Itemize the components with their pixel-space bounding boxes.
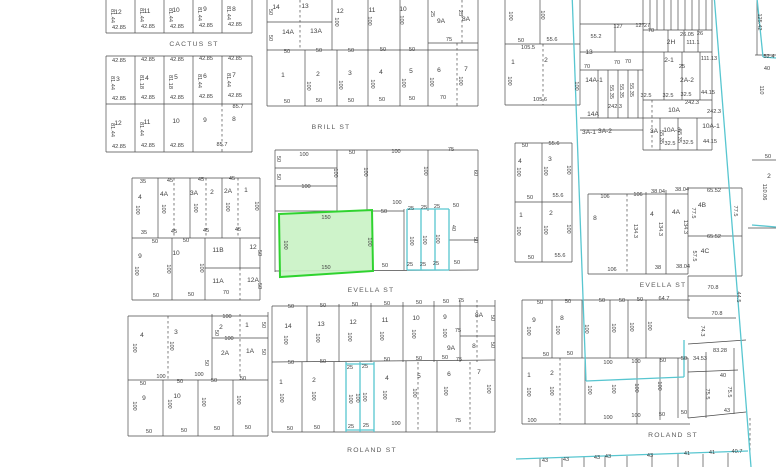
dimension-label: 100 [457,76,463,85]
lot-number-label: 3A [650,128,659,135]
dimension-label: 50 [454,260,460,266]
dimension-label: 81.18 [138,75,144,89]
lot-number-label: 8 [560,315,564,322]
dimension-label: 100 [554,325,560,334]
dimension-label: 32.5 [683,140,694,146]
dimension-label: 50 [245,425,251,431]
dimension-label: 100 [525,387,531,396]
dimension-label: 42.85 [199,23,213,29]
dimension-label: 25 [408,206,414,212]
dimension-label: 38.04 [675,187,689,193]
dimension-label: 42.85 [141,143,155,149]
lot-number-label: 6 [203,73,207,80]
dimension-label: 32.5 [665,141,676,147]
dimension-label: 40 [764,66,770,72]
lot-number-label: 9A [447,345,456,352]
dimension-label: 44.15 [703,139,717,145]
dimension-label: 50 [489,342,495,348]
dimension-label: 43 [563,457,569,463]
lot-number-label: 11 [144,119,151,126]
dimension-label: 100 [548,386,554,395]
dimension-label: 70 [440,95,446,101]
dimension-label: 55.2 [591,34,602,40]
dimension-label: 45 [167,178,173,184]
lot-number-label: 4C [701,248,710,255]
dimension-label: 40 [450,225,456,231]
dimension-label: 50 [183,238,189,244]
dimension-label: 75 [458,298,464,304]
dimension-label: 106 [607,267,616,273]
lot-number-label: 1 [527,372,531,379]
dimension-label: 100 [222,314,231,320]
dimension-label: 50 [409,96,415,102]
dimension-label: 100 [485,384,491,393]
dimension-label: 50 [565,299,571,305]
lot-number-label: 12 [114,120,122,127]
dimension-label: 100 [515,167,521,176]
dimension-label: 55.6 [547,37,558,43]
dimension-label: 100 [628,322,634,331]
dimension-label: 100 [631,359,640,365]
dimension-label: 45 [171,229,177,235]
lot-number-label: 6 [447,371,451,378]
dimension-label: 100 [305,81,311,90]
street-label: EVELLA ST [348,287,395,294]
dimension-label: 100 [542,225,548,234]
dimension-label: 42.85 [228,93,242,99]
dimension-label: 77.5 [732,206,738,217]
dimension-label: 26.05 [680,32,694,38]
dimension-label: 81.44 [225,73,231,87]
dimension-label: 41 [709,450,715,456]
dimension-label: 42.85 [112,96,126,102]
dimension-label: 100 [398,15,404,24]
dimension-label: 75 [446,37,452,43]
dimension-label: 50 [765,154,771,160]
dimension-label: 42.85 [141,24,155,30]
dimension-label: 50 [188,292,194,298]
lot-number-label: 8A [462,16,471,23]
dimension-label: 55.35 [618,84,624,98]
dimension-label: 50 [527,195,533,201]
lot-number-label: 2A [221,350,230,357]
dimension-label: 110.06 [761,184,767,201]
dimension-label: 100 [610,323,616,332]
lot-number-label: 2 [219,324,223,331]
dimension-label: 42.85 [112,58,126,64]
dimension-label: 45 [203,228,209,234]
dimension-label: 50 [416,300,422,306]
lot-number-label: 8 [593,215,597,222]
dimension-label: 100 [200,397,206,406]
dimension-label: 65.52 [707,234,721,240]
dimension-label: 25 [421,205,427,211]
dimension-label: 42.85 [199,56,213,62]
dimension-label: 44.15 [701,90,715,96]
dimension-label: 111.1 [686,40,699,46]
lot-number-label: 2 [210,189,214,196]
lot-number-label: 2 [316,71,320,78]
lot-number-label: 4B [698,202,707,209]
dimension-label: 50 [382,263,388,269]
lot-number-label: 12 [249,244,257,251]
lot-number-label: 10 [412,315,420,322]
lot-number-label: 11B [212,247,224,254]
dimension-label: 100 [224,336,233,342]
lot-number-label: 7 [232,72,236,79]
dimension-label: 100 [133,266,139,275]
dimension-label: 25 [679,64,685,70]
dimension-label: 50 [472,237,478,243]
dimension-label: 100 [192,203,198,212]
dimension-label: 60 [472,170,478,176]
dimension-label: 100 [160,204,166,213]
lot-number-label: 7 [464,66,468,73]
lot-number-label: 4A [160,191,169,198]
dimension-label: 100 [441,328,447,337]
dimension-label: 100 [168,341,174,350]
lot-number-label: 3 [116,76,120,83]
lot-number-label: 14 [284,323,292,330]
street-label: EVELLA ST [640,282,687,289]
dimension-label: 100 [408,236,414,245]
dimension-label: 100 [391,149,400,155]
parcel-map: 15015010010081.4481.4481.4481.4481.4442.… [0,0,776,467]
dimension-label: 50 [381,209,387,215]
lot-number-label: 3A [190,190,199,197]
lot-number-label: 4 [379,69,383,76]
dimension-label: 50 [275,174,281,180]
dimension-label: 100 [198,263,204,272]
dimension-label: 134.3 [657,222,663,236]
lot-number-label: 10 [172,7,180,14]
dimension-label: 100 [333,17,339,26]
dimension-label: 55.6 [555,253,566,259]
dimension-label: 100 [282,335,288,344]
lot-number-label: 14A [587,111,599,118]
dimension-label: 100 [391,421,400,427]
dimension-label: 50 [384,357,390,363]
dimension-label: 100 [347,394,353,403]
dimension-label: 45 [198,177,204,183]
dimension-label: 50 [380,47,386,53]
dimension-label: 100 [656,381,662,390]
dimension-label: 100 [131,343,137,352]
dimension-label: 50 [416,356,422,362]
lot-number-label: 1 [244,187,248,194]
lot-number-label: 2 [549,210,553,217]
lot-number-label: 1 [519,212,523,219]
dimension-label: 25 [347,365,353,371]
dimension-label: 100 [434,234,440,243]
lot-number-label: 13 [317,321,325,328]
lot-number-label: 9 [203,117,207,124]
dimension-label: 100 [515,226,521,235]
dimension-label: 25 [434,204,440,210]
dimension-label: 35 [141,230,147,236]
lot-number-label: 9 [443,314,447,321]
lot-number-label: 2A-2 [680,77,694,84]
dimension-label: 100 [301,184,310,190]
street-label: ROLAND ST [347,447,397,454]
highlighted-parcel-dimension: 150 [321,215,330,221]
dimension-label: 127 [613,24,622,30]
lot-number-label: 3A-2 [598,128,612,135]
dimension-label: 70.8 [712,311,723,317]
dimension-label: 100 [369,79,375,88]
dimension-label: 45 [229,176,235,182]
dimension-label: 70 [648,28,654,34]
dimension-label: 25 [420,262,426,268]
dimension-label: 50 [348,98,354,104]
dimension-label: 75 [456,357,462,363]
dimension-label: 100 [527,418,536,424]
dimension-label: 25 [363,423,369,429]
dimension-label: 50 [349,150,355,156]
dimension-label: 43 [724,408,730,414]
dimension-label: 70 [584,64,590,70]
lot-number-label: 12 [349,319,357,326]
dimension-label: 125.42 [756,13,762,30]
dimension-label: 106 [600,194,609,200]
dimension-label: 50 [288,304,294,310]
dimension-label: 100 [165,264,171,273]
dimension-label: 81.18 [167,75,173,89]
dimension-label: 50 [181,428,187,434]
lot-number-label: 1A [246,348,255,355]
dimension-label: 75 [455,418,461,424]
dimension-label: 50 [518,38,524,44]
dimension-label: 42.85 [170,143,184,149]
dimension-label: 100 [310,391,316,400]
dimension-label: 100 [366,16,372,25]
dimension-label: 50 [316,48,322,54]
dimension-label: 100 [378,331,384,340]
dimension-label: 50 [177,379,183,385]
dimension-label: 50 [153,293,159,299]
dimension-label: 100 [346,332,352,341]
lot-number-label: 11 [382,317,389,324]
dimension-label: 43 [647,453,653,459]
dimension-label: 40 [720,373,726,379]
dimension-label: 81.44 [196,74,202,88]
dimension-label: 57.5 [691,251,697,262]
dimension-label: 85.7 [233,104,244,110]
dimension-label: 134.3 [682,220,688,234]
lot-number-label: 13 [585,49,593,56]
dimension-label: 100 [278,393,284,402]
lot-number-label: 12 [114,9,122,16]
dimension-label: 100 [134,205,140,214]
dimension-label: 100 [507,11,513,20]
dimension-label: 50 [409,47,415,53]
dimension-label: 38 [655,265,661,271]
dimension-label: 100 [410,329,416,338]
dimension-label: 100 [565,224,571,233]
dimension-label: 100 [235,395,241,404]
dimension-label: 70 [625,59,631,65]
lot-number-label: 4 [145,75,149,82]
dimension-label: 43 [605,454,611,460]
lot-number-label: 2A [224,188,233,195]
lot-number-label: 9 [138,253,142,260]
dimension-label: 42.85 [228,22,242,28]
lot-number-label: 5 [409,68,413,75]
dimension-label: 25 [362,364,368,370]
dimension-label: 85.7 [217,142,228,148]
highlighted-parcel-dimension: 100 [366,237,372,246]
dimension-label: 50 [442,355,448,361]
dimension-label: 38.04 [676,264,690,270]
dimension-label: 74.3 [699,326,705,337]
dimension-label: 100 [421,235,427,244]
dimension-label: 100 [542,166,548,175]
dimension-label: 100 [428,77,434,86]
dimension-label: 42.85 [199,94,213,100]
dimension-label: 100 [539,10,545,19]
dimension-label: 50 [284,99,290,105]
dimension-label: 50 [275,156,281,162]
dimension-label: 50 [443,299,449,305]
lot-number-label: 2 [767,173,771,180]
dimension-label: 100 [631,413,640,419]
dimension-label: 100 [253,201,259,210]
lot-number-label: 1 [511,59,515,66]
dimension-label: 42.85 [170,57,184,63]
dimension-label: 81.44 [196,7,202,21]
dimension-label: 55.35 [628,83,634,97]
lot-number-label: 4 [138,194,142,201]
dimension-label: 100 [337,80,343,89]
dimension-label: 75 [455,328,461,334]
lot-number-label: 4 [385,375,389,382]
dimension-label: 50 [659,412,665,418]
dimension-label: 50 [287,426,293,432]
lot-number-label: 10A-3 [663,127,681,134]
dimension-label: 44.5 [735,292,741,303]
dimension-label: 50 [140,381,146,387]
dimension-label: 100 [565,165,571,174]
lot-number-label: 1 [281,72,285,79]
dimension-label: 32.5 [681,92,692,98]
dimension-label: 111.13 [701,56,717,62]
dimension-label: 70 [614,60,620,66]
lot-number-label: 2 [550,370,554,377]
dimension-label: 42.85 [112,144,126,150]
lot-number-label: 8 [472,343,476,350]
dimension-label: 83.28 [713,348,727,354]
dimension-label: 242.3 [685,100,699,106]
dimension-label: 50 [203,360,209,366]
lot-number-label: 10 [172,250,180,257]
lot-number-label: 8 [232,6,236,13]
lot-number-label: 10 [172,118,180,125]
dimension-label: 50 [260,349,266,355]
dimension-label: 50 [214,426,220,432]
street-label: BRILL ST [312,124,351,131]
dimension-label: 100 [361,392,367,401]
dimension-label: 50 [240,376,246,382]
dimension-label: 50 [260,322,266,328]
lot-number-label: 8A [475,312,484,319]
lot-number-label: 14A-1 [585,77,603,84]
dimension-label: 50 [543,352,549,358]
dimension-label: 100 [573,81,579,90]
dimension-label: 70 [223,290,229,296]
lot-number-label: 13 [301,3,309,10]
dimension-label: 43 [594,455,600,461]
lot-number-label: 9 [532,317,536,324]
dimension-label: 50 [619,298,625,304]
lot-number-label: 9A [437,18,446,25]
dimension-label: 100 [299,152,308,158]
lot-number-label: 11A [212,278,224,285]
dimension-label: 81.44 [109,76,115,90]
dimension-label: 50 [314,425,320,431]
dimension-label: 25 [429,11,435,17]
dimension-label: 50 [320,359,326,365]
dimension-label: 100 [362,167,368,176]
dimension-label: 50 [267,35,273,41]
lot-number-label: 3A-1 [582,129,596,136]
lot-number-label: 1 [245,322,249,329]
dimension-label: 50 [537,300,543,306]
dimension-label: 242.3 [707,109,721,115]
dimension-label: 42.85 [112,25,126,31]
dimension-label: 32.5 [663,93,674,99]
dimension-label: 25 [348,424,354,430]
dimension-label: 75.5 [726,387,732,398]
dimension-label: 105.5 [521,45,535,51]
dimension-label: 50 [453,203,459,209]
dimension-label: 100 [506,76,512,85]
lot-number-label: 12A [247,277,259,284]
lot-number-label: 2 [312,377,316,384]
lot-number-label: 13A [310,28,322,35]
highlighted-parcel-dimension: 100 [282,240,288,249]
dimension-label: 26 [697,31,703,37]
dimension-label: 55.6 [549,141,560,147]
dimension-label: 100 [354,393,360,402]
lot-number-label: 14A [282,29,294,36]
lot-number-label: 9 [142,395,146,402]
lot-number-label: 3 [348,70,352,77]
dimension-label: 42.85 [141,57,155,63]
dimension-label: 110 [758,86,764,95]
dimension-label: 100 [131,401,137,410]
dimension-label: 77.5 [690,208,696,219]
dimension-label: 105.6 [533,97,547,103]
dimension-label: 50 [489,315,495,321]
dimension-label: 50 [256,250,262,256]
lot-number-label: 3 [174,329,178,336]
dimension-label: 42.85 [141,95,155,101]
lot-number-label: 4 [140,332,144,339]
dimension-label: 50 [379,97,385,103]
lot-number-label: 11 [144,8,151,15]
dimension-label: 50 [660,358,666,364]
dimension-label: 42.85 [170,24,184,30]
dimension-label: 50 [213,330,219,336]
dimension-label: 50 [211,378,217,384]
lot-number-label: 11 [369,7,376,14]
dimension-label: 100 [586,385,592,394]
lot-number-label: 12 [336,8,344,15]
dimension-label: 50 [284,49,290,55]
dimension-label: 42.85 [170,95,184,101]
dimension-label: 35 [140,179,146,185]
dimension-label: 41 [684,451,690,457]
